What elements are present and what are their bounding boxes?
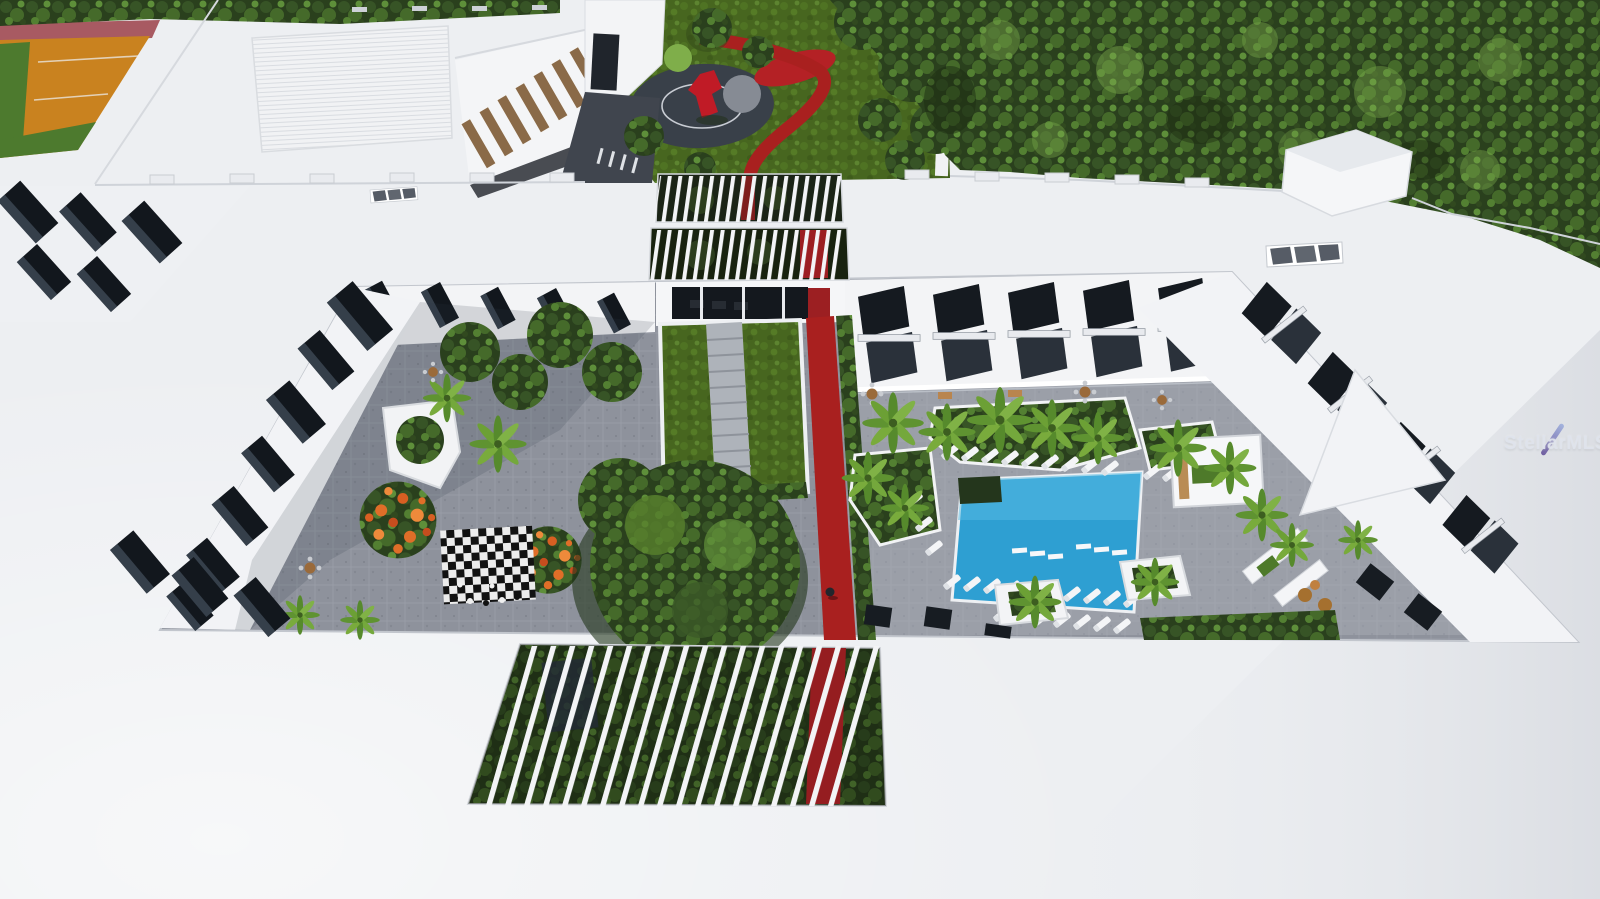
giant-chess-board [440,526,536,606]
pergola-south [468,644,886,806]
pergola-north-1 [654,174,843,222]
pergola-north-2 [646,228,849,280]
entrance-red-carpet [808,288,830,320]
skylight-vent-right [1266,242,1343,267]
flowering-tree-1 [360,482,437,559]
aerial-rendering: StellarMLS [0,0,1600,899]
rendering-canvas [0,0,1600,899]
palm-bottom-left-2 [340,600,380,640]
